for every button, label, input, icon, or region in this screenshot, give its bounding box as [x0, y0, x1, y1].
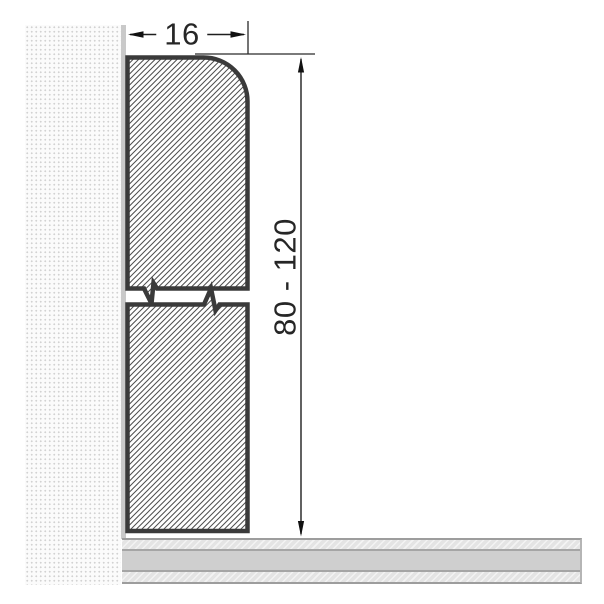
profile-upper-section	[128, 58, 248, 304]
arrow-right-icon	[231, 31, 247, 37]
arrow-left-icon	[128, 31, 144, 37]
diagram-canvas: 16 80 - 120	[0, 0, 604, 604]
arrow-up-icon	[298, 57, 304, 73]
width-dimension-label: 16	[156, 19, 207, 50]
profile-lower-section	[128, 289, 248, 532]
arrow-down-icon	[298, 521, 304, 537]
height-dimension-label: 80 - 120	[270, 218, 301, 336]
